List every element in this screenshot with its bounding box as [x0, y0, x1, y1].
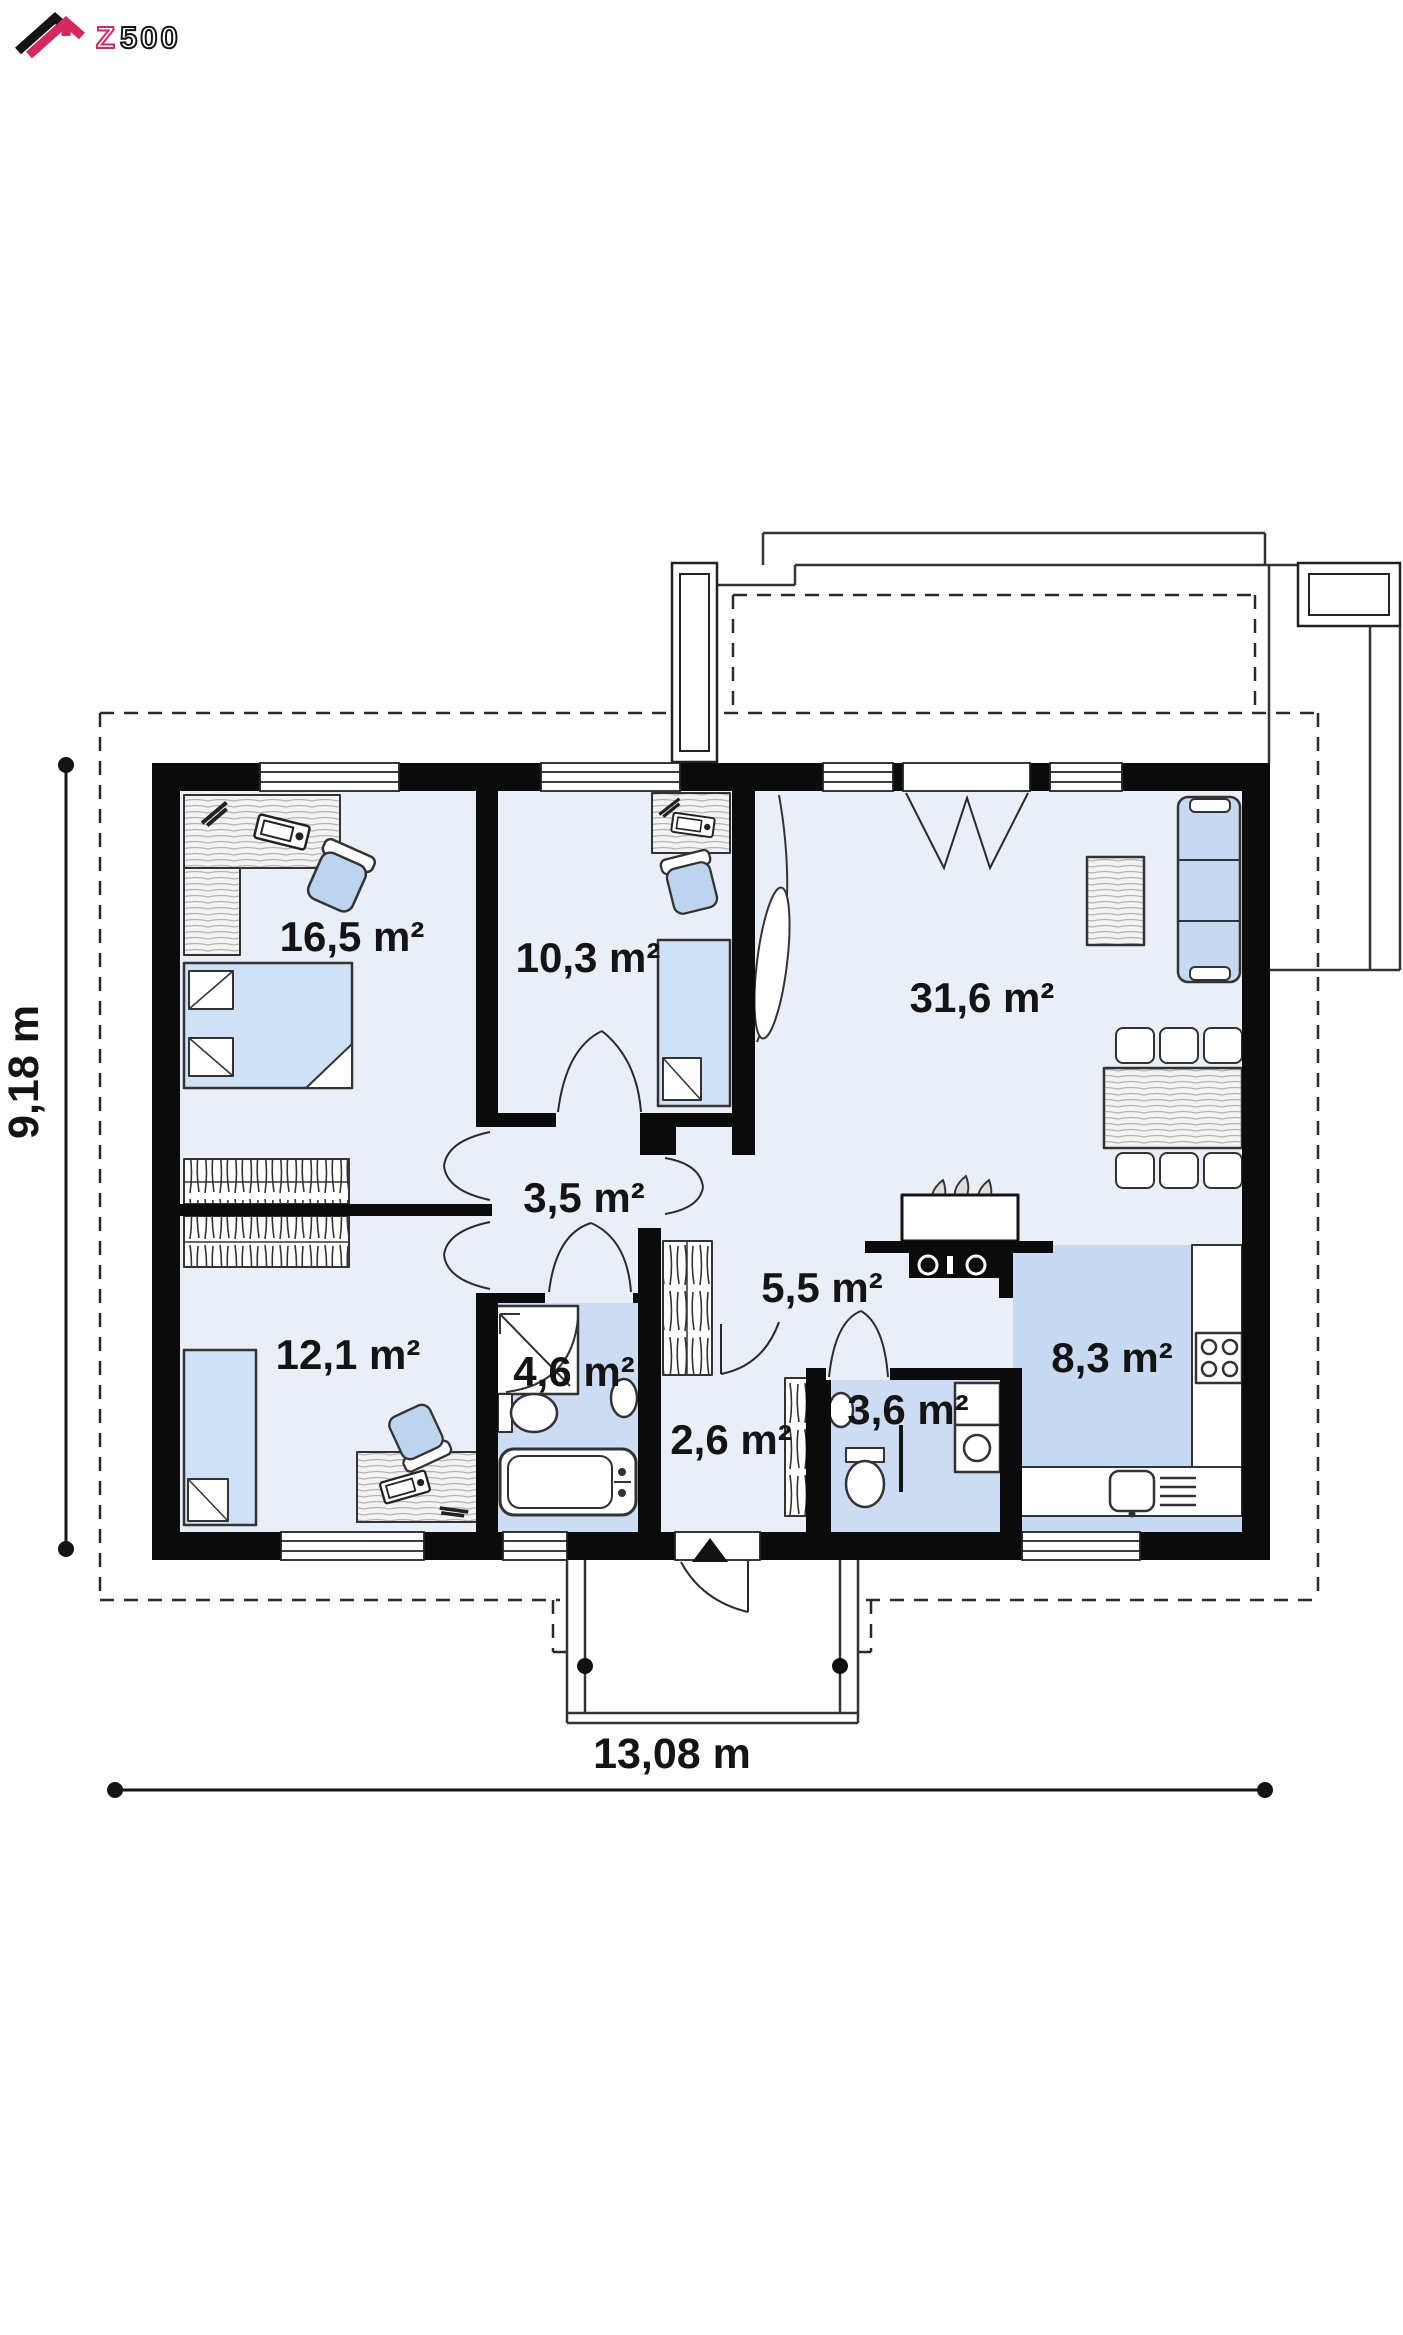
- stove-icon: [1196, 1333, 1242, 1383]
- entry-porch: [567, 1560, 858, 1723]
- terrace-side-window-left: [672, 563, 717, 762]
- floor-plan: 9,18 m 13,08 m 16,5 m² 10,3 m² 31,6 m² 3…: [0, 0, 1403, 2335]
- window: [503, 1532, 567, 1560]
- toilet-icon: [846, 1448, 884, 1507]
- depth-label: 9,18 m: [0, 1005, 48, 1139]
- room-area-label-vestibule: 2,6 m²: [670, 1416, 791, 1463]
- toilet-icon: [498, 1394, 557, 1432]
- window: [260, 763, 399, 791]
- desk-icon: [652, 793, 730, 853]
- room-area-label-bedroom-middle: 10,3 m²: [516, 934, 661, 981]
- window: [281, 1532, 424, 1560]
- window: [1022, 1532, 1140, 1560]
- room-area-label-corridor: 5,5 m²: [761, 1264, 882, 1311]
- wardrobe-icon: [184, 1159, 349, 1204]
- terrace-door-opening: [903, 763, 1030, 791]
- room-area-label-hall: 3,5 m²: [523, 1174, 644, 1221]
- width-label: 13,08 m: [593, 1730, 751, 1778]
- window: [541, 763, 680, 791]
- wardrobe-icon: [184, 1216, 349, 1267]
- single-bed-icon: [184, 1350, 256, 1525]
- window: [1050, 763, 1122, 791]
- single-bed-icon: [658, 940, 730, 1106]
- window: [823, 763, 893, 791]
- porch-column: [577, 1658, 593, 1674]
- terrace-side-window-right: [1298, 563, 1400, 626]
- dimension-depth: 9,18 m: [0, 757, 74, 1557]
- room-area-label-wc: 3,6 m²: [847, 1386, 968, 1433]
- room-area-label-bedroom-small: 12,1 m²: [276, 1331, 421, 1378]
- hall-closet-icon: [663, 1241, 712, 1375]
- room-area-label-bathroom: 4,6 m²: [513, 1348, 634, 1395]
- dimension-width: 13,08 m: [107, 1730, 1273, 1798]
- room-area-label-bedroom-large: 16,5 m²: [280, 913, 425, 960]
- floor-plan-page: Z 500: [0, 0, 1403, 2335]
- sofa-icon: [1178, 797, 1240, 982]
- bathtub-icon: [500, 1449, 636, 1515]
- coffee-table-icon: [1087, 857, 1144, 945]
- kitchen-island-hob-icon: [919, 1256, 985, 1274]
- terrace-slab-edge: [1268, 626, 1400, 970]
- room-area-label-living-room: 31,6 m²: [910, 974, 1055, 1021]
- porch-column: [832, 1658, 848, 1674]
- room-area-label-kitchen: 8,3 m²: [1051, 1334, 1172, 1381]
- double-bed-icon: [184, 963, 352, 1088]
- dining-set-icon: [1104, 1028, 1242, 1188]
